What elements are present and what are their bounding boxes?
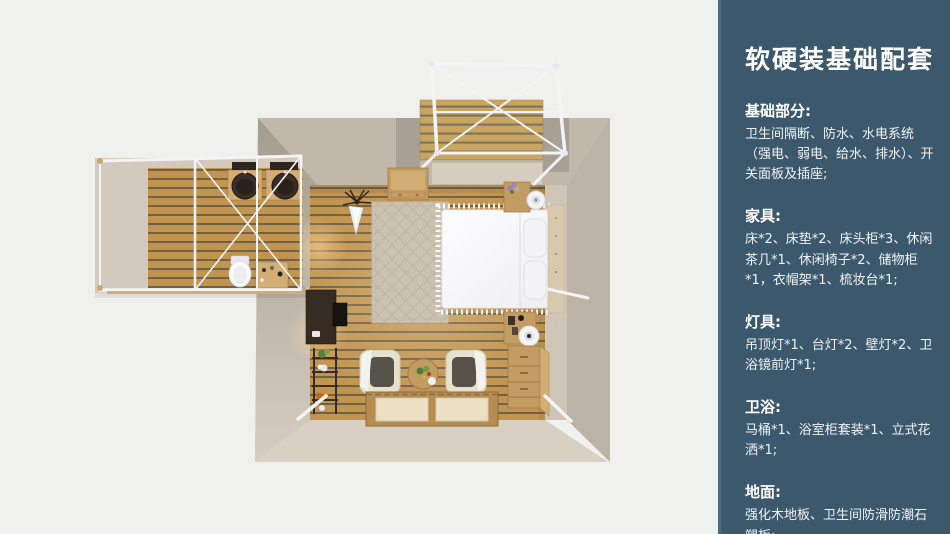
bathroom-wing xyxy=(95,156,307,298)
section-heading-basics: 基础部分: xyxy=(745,100,936,121)
frame-cap xyxy=(97,158,103,164)
table-lamp-top xyxy=(527,191,545,209)
frame-cap xyxy=(97,285,103,291)
slide: 软硬装基础配套 基础部分: 卫生间隔断、防水、水电系统（强电、弱电、给水、排水）… xyxy=(0,0,950,534)
spec-section-furniture: 家具: 床*2、床垫*2、床头柜*3、休闲茶几*1、休闲椅子*2、储物柜*1，衣… xyxy=(745,205,936,290)
room-render-area xyxy=(0,0,718,534)
room-render xyxy=(0,0,718,534)
round-tea-table xyxy=(408,359,438,389)
section-heading-bathroom: 卫浴: xyxy=(745,396,936,417)
sidebar-accent-edge xyxy=(718,0,721,534)
spec-section-bathroom: 卫浴: 马桶*1、浴室柜套装*1、立式花洒*1; xyxy=(745,396,936,461)
table-lamp-bottom xyxy=(519,326,539,346)
armchair-left xyxy=(360,350,400,394)
sidebar-title: 软硬装基础配套 xyxy=(745,40,936,76)
section-heading-furniture: 家具: xyxy=(745,205,936,226)
spec-sidebar: 软硬装基础配套 基础部分: 卫生间隔断、防水、水电系统（强电、弱电、给水、排水）… xyxy=(718,0,950,534)
armchair-right xyxy=(446,350,486,394)
canopy-joint xyxy=(553,63,559,69)
wing-bottom-wood-rail xyxy=(107,291,306,294)
section-heading-lighting: 灯具: xyxy=(745,311,936,332)
mirror-slot-left xyxy=(232,162,258,170)
spec-section-lighting: 灯具: 吊顶灯*1、台灯*2、壁灯*2、卫浴镜前灯*1; xyxy=(745,311,936,376)
spec-section-basics: 基础部分: 卫生间隔断、防水、水电系统（强电、弱电、给水、排水）、开关面板及插座… xyxy=(745,100,936,185)
section-body-bathroom: 马桶*1、浴室柜套装*1、立式花洒*1; xyxy=(745,421,936,461)
storage-cabinet xyxy=(388,168,428,200)
pillow-bottom xyxy=(524,261,546,299)
section-body-basics: 卫生间隔断、防水、水电系统（强电、弱电、给水、排水）、开关面板及插座; xyxy=(745,125,936,185)
canopy-joint xyxy=(429,61,435,67)
section-body-furniture: 床*2、床垫*2、床头柜*3、休闲茶几*1、休闲椅子*2、储物柜*1，衣帽架*1… xyxy=(745,230,936,290)
double-bed xyxy=(438,205,564,314)
pillow-top xyxy=(524,219,546,257)
section-body-flooring: 强化木地板、卫生间防滑防潮石塑板; xyxy=(745,506,936,534)
section-body-lighting: 吊顶灯*1、台灯*2、壁灯*2、卫浴镜前灯*1; xyxy=(745,336,936,376)
vanity-cabinet xyxy=(256,262,288,288)
toilet xyxy=(229,256,251,287)
headboard xyxy=(548,205,564,313)
chest-of-drawers xyxy=(508,346,549,416)
section-heading-flooring: 地面: xyxy=(745,481,936,502)
spec-section-flooring: 地面: 强化木地板、卫生间防滑防潮石塑板; xyxy=(745,481,936,534)
canopy-joint xyxy=(434,150,440,156)
canopy-joint xyxy=(562,150,568,156)
tatami-platform xyxy=(366,392,498,426)
nightstand-top xyxy=(504,182,530,212)
balcony-door-sill xyxy=(432,163,542,184)
tv-panel xyxy=(333,303,347,326)
